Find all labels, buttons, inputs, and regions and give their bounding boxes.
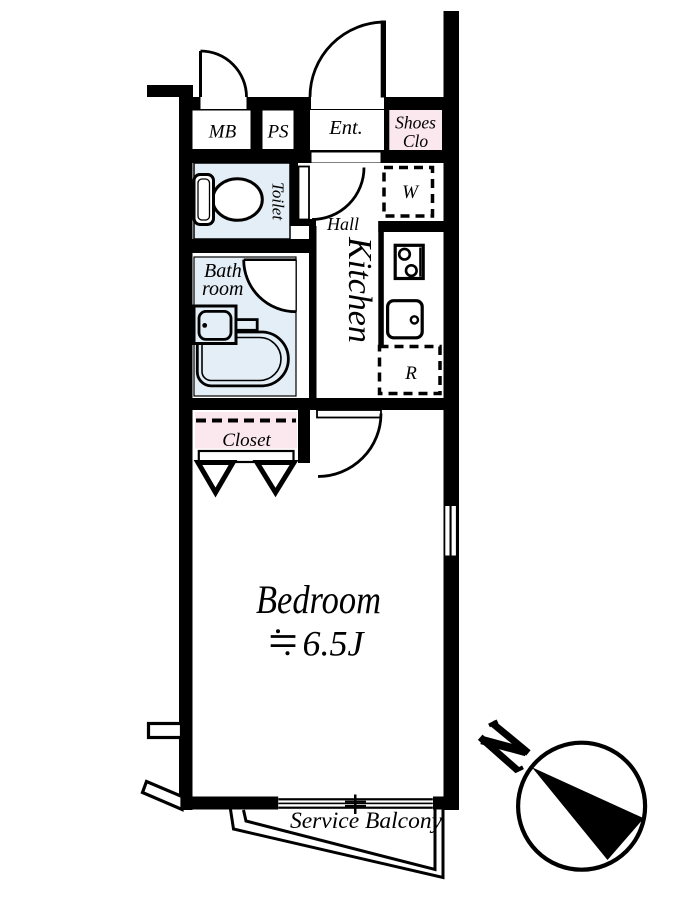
svg-text:PS: PS: [266, 122, 289, 143]
svg-text:Closet: Closet: [222, 430, 271, 451]
svg-text:Kitchen: Kitchen: [341, 236, 378, 343]
svg-text:6.5J: 6.5J: [303, 624, 366, 664]
svg-text:R: R: [404, 363, 417, 384]
svg-text:Shoes: Shoes: [395, 113, 436, 133]
svg-text:Ent.: Ent.: [328, 117, 363, 139]
svg-text:room: room: [202, 278, 243, 300]
svg-text:MB: MB: [208, 122, 237, 143]
svg-text:Toilet: Toilet: [268, 182, 287, 221]
svg-text:Clo: Clo: [403, 131, 429, 151]
svg-text:Hall: Hall: [326, 214, 359, 234]
svg-text:Service Balcony: Service Balcony: [290, 808, 443, 834]
svg-text:Bedroom: Bedroom: [256, 577, 381, 622]
svg-text:W: W: [402, 182, 420, 203]
